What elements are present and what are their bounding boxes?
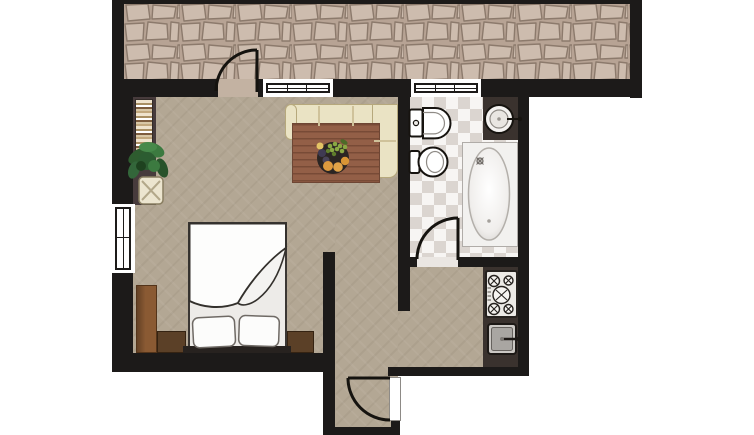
bathroom-bottom-wall <box>398 257 417 267</box>
hall-right-wall <box>391 421 400 435</box>
top-wall-segment <box>333 79 411 97</box>
kitchen-counter <box>483 267 518 367</box>
window-frame <box>115 207 131 270</box>
wardrobe <box>136 285 157 353</box>
floor-plan <box>0 0 754 435</box>
bedroom-bottom-wall <box>112 353 335 372</box>
living-window-top <box>263 79 333 97</box>
sofa-seam <box>352 106 354 126</box>
kitchen-bottom-wall <box>388 367 518 376</box>
basin-counter <box>483 97 518 140</box>
bathroom-left-wall <box>398 97 410 311</box>
terrace-door-opening <box>218 79 258 97</box>
terrace-stone-floor <box>124 3 630 79</box>
bathtub-body <box>462 142 518 247</box>
terrace-top-wall <box>112 0 642 4</box>
window-frame <box>266 83 330 93</box>
sofa-seam <box>318 106 320 126</box>
right-wall <box>518 97 529 376</box>
bathroom-window-top <box>411 79 481 97</box>
top-wall-segment <box>112 79 218 97</box>
nightstand-left <box>157 331 186 353</box>
nightstand-right <box>287 331 314 353</box>
living-window-left <box>111 204 135 273</box>
coffee-table <box>292 123 380 183</box>
double-bed-frame <box>188 222 287 353</box>
left-wall-upper <box>112 97 133 204</box>
top-wall-segment <box>481 79 642 97</box>
bathroom-bottom-wall <box>458 257 518 267</box>
entry-door-threshold <box>389 377 401 421</box>
hall-left-wall <box>323 252 335 435</box>
bathroom-door-opening <box>417 257 458 267</box>
window-frame <box>414 83 478 93</box>
hall-bottom-wall <box>323 427 400 435</box>
left-wall-lower <box>112 273 133 353</box>
bookshelf <box>135 99 153 151</box>
sofa-seam <box>374 140 396 142</box>
